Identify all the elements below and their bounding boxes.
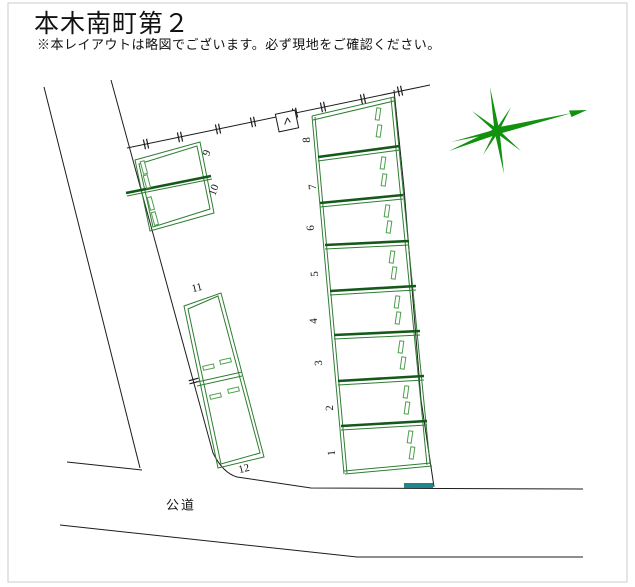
stop-marker bbox=[395, 312, 401, 324]
divider-4-3 bbox=[334, 331, 420, 335]
stop-marker bbox=[220, 358, 232, 364]
stop-marker bbox=[210, 393, 222, 399]
space-label: 4 bbox=[308, 317, 320, 324]
road-bottom-edge bbox=[60, 525, 583, 557]
stop-marker bbox=[407, 431, 413, 443]
stop-marker bbox=[380, 157, 386, 169]
stop-marker bbox=[389, 251, 395, 263]
stop-markers bbox=[140, 108, 415, 459]
space-dividers bbox=[126, 146, 427, 426]
road-label: 公道 bbox=[166, 498, 196, 513]
stop-marker bbox=[409, 447, 415, 459]
strip-bottom-edge bbox=[344, 463, 432, 474]
stop-marker bbox=[394, 296, 400, 308]
space-label: 1 bbox=[326, 450, 338, 456]
space-label: 5 bbox=[309, 270, 321, 277]
stop-marker bbox=[404, 402, 410, 414]
strip-left-edge bbox=[312, 116, 347, 474]
space-label: 8 bbox=[301, 136, 313, 143]
left-outer-boundary bbox=[44, 87, 140, 468]
compass-arrowhead bbox=[569, 110, 587, 117]
stop-marker bbox=[386, 221, 392, 233]
stop-marker bbox=[400, 357, 406, 369]
parking-layout-page: 本木南町第２ ※本レイアウトは略図でございます。必ず現地をご確認ください。 bbox=[0, 0, 635, 587]
divider-7-6 bbox=[320, 195, 403, 203]
stop-marker bbox=[391, 267, 397, 279]
stop-marker bbox=[203, 364, 215, 370]
stop-marker bbox=[376, 125, 382, 137]
plan-frame bbox=[8, 3, 627, 582]
left-inner-boundary-and-road-top bbox=[111, 80, 583, 489]
space-label: 6 bbox=[305, 224, 317, 231]
stop-marker bbox=[398, 341, 404, 353]
stop-marker bbox=[384, 205, 390, 217]
strip-top-edge bbox=[312, 97, 394, 120]
space-label: 11 bbox=[190, 281, 203, 295]
stop-marker bbox=[381, 174, 387, 186]
space-label: 10 bbox=[206, 182, 221, 197]
space-label: 7 bbox=[307, 183, 319, 190]
space-label: 12 bbox=[237, 462, 251, 476]
road-edge-left-segment bbox=[67, 462, 142, 470]
stop-marker bbox=[228, 387, 240, 393]
strip-right-edge bbox=[391, 97, 430, 465]
stop-marker bbox=[375, 108, 381, 120]
site-plan: 1 2 3 4 5 6 7 8 9 10 11 12 公道 bbox=[0, 0, 635, 587]
entrance-marker bbox=[404, 483, 433, 488]
divider-6-5 bbox=[325, 241, 409, 245]
space-label: 2 bbox=[324, 405, 336, 411]
pole-symbol-box bbox=[275, 110, 298, 132]
pole-symbol-icon bbox=[275, 110, 298, 132]
boundary-tick bbox=[189, 378, 199, 384]
compass-needle bbox=[449, 113, 572, 151]
right-boundary bbox=[394, 90, 434, 487]
stop-marker bbox=[403, 386, 409, 398]
space-label: 3 bbox=[313, 359, 325, 366]
parking-outlines bbox=[126, 97, 432, 474]
compass-icon bbox=[449, 87, 587, 174]
